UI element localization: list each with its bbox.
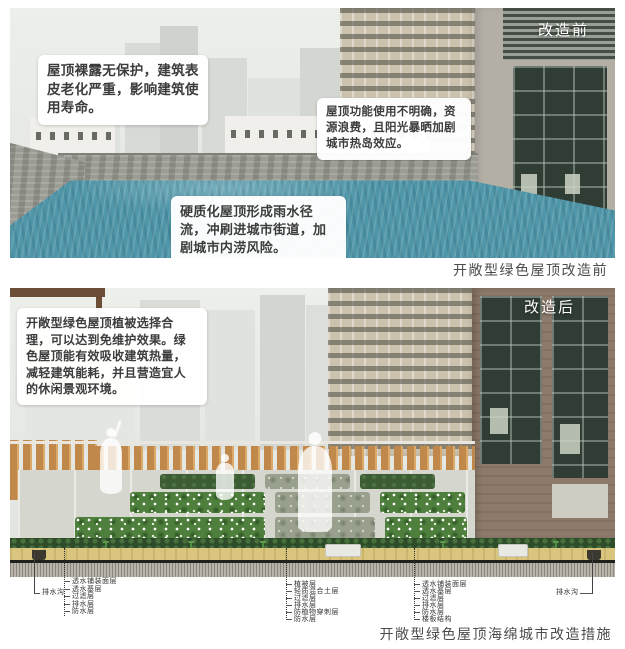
white-tarp: [552, 484, 608, 518]
skyline-tower: [205, 310, 255, 450]
layer-label: 防水层: [414, 609, 467, 616]
leader-connector: [580, 593, 592, 594]
callout-green-roof-benefits: 开敞型绿色屋顶植被选择合理，可以达到免维护效果。绿色屋顶能有效吸收建筑热量，减轻…: [17, 308, 207, 405]
skyline-tower: [260, 295, 305, 450]
caption-before: 开敞型绿色屋顶改造前: [453, 260, 608, 280]
photo-before-renovation: 改造前 屋顶裸露无保护，建筑表皮老化严重，影响建筑使用寿命。 屋顶功能使用不明确…: [10, 8, 615, 258]
green-glass-window: [552, 296, 608, 478]
planted-bed: [385, 517, 467, 540]
fence-rail: [10, 441, 475, 444]
drain-channel-graphic: [587, 550, 601, 560]
layer-label: 透水基层: [64, 586, 117, 594]
layer-label: 防植物穿刺层: [286, 609, 339, 616]
leader-line-drain-left: [34, 552, 35, 594]
sprout-icon: [555, 541, 557, 548]
planted-bed: [160, 474, 255, 489]
planted-bed: [75, 517, 265, 540]
brown-building: [472, 288, 615, 540]
planted-bed: [380, 492, 465, 513]
layer-label: 防水层: [64, 608, 117, 616]
layer-label: 透水铺装面层: [64, 578, 117, 586]
planted-bed: [360, 474, 435, 489]
apartment-tower: [328, 288, 478, 456]
caption-after: 开敞型绿色屋顶海绵城市改造措施: [380, 624, 613, 644]
callout-roof-exposed: 屋顶裸露无保护，建筑表皮老化严重，影响建筑使用寿命。: [38, 55, 208, 125]
right-layer-list: 透水铺装面层 透水基层 过滤层 排水层 防水层 楼板结构: [414, 581, 467, 623]
layer-label: 过滤层: [414, 595, 467, 602]
planter-box-graphic: [325, 544, 361, 557]
callout-runoff: 硬质化屋顶形成雨水径流，冲刷进城市街道，加剧城市内涝风险。: [171, 196, 346, 258]
layer-label: 排水层: [414, 602, 467, 609]
layer-label: 楼板结构: [414, 616, 467, 623]
drain-right-label: 排水沟: [556, 589, 579, 597]
layer-label: 轻质混合土层: [286, 588, 339, 595]
left-layer-list: 透水铺装面层 透水基层 过滤层 排水层 防水层: [64, 578, 117, 616]
planted-bed: [130, 492, 265, 513]
sprout-icon: [442, 541, 444, 548]
tag-after: 改造后: [524, 296, 575, 317]
drain-left-label: 排水沟: [42, 589, 65, 597]
structural-deck-graphic: [10, 563, 615, 577]
person-silhouette: [216, 454, 234, 500]
infographic-green-roof: 改造前 屋顶裸露无保护，建筑表皮老化严重，影响建筑使用寿命。 屋顶功能使用不明确…: [0, 0, 625, 649]
window-poster: [565, 174, 580, 194]
sprout-icon: [262, 541, 264, 548]
tag-before: 改造前: [538, 19, 589, 40]
sprout-icon: [190, 541, 192, 548]
person-silhouette: [298, 432, 332, 532]
layer-label: 过滤层: [286, 595, 339, 602]
layer-label: 防水层: [286, 616, 339, 623]
pergola-beam: [10, 288, 105, 297]
leader-line-drain-right: [592, 552, 593, 594]
layer-label: 排水层: [64, 601, 117, 609]
roof-cross-section: [10, 538, 615, 578]
leader-connector: [35, 593, 40, 594]
callout-heat-island: 屋顶功能使用不明确，资源浪费，且阳光暴晒加剧城市热岛效应。: [317, 98, 471, 160]
photo-after-renovation: 改造后 开敞型绿色屋顶植被选择合理，可以达到免维护效果。绿色屋顶能有效吸收建筑热…: [10, 288, 615, 540]
window-poster: [560, 424, 580, 454]
green-glass-window: [513, 66, 607, 214]
green-glass-window: [480, 296, 542, 464]
layer-label: 过滤层: [64, 593, 117, 601]
planter-box-graphic: [498, 544, 528, 557]
layer-label: 植被层: [286, 581, 339, 588]
layer-label: 透水基层: [414, 588, 467, 595]
layer-label: 透水铺装面层: [414, 581, 467, 588]
window-poster: [490, 408, 508, 434]
layer-label: 排水层: [286, 602, 339, 609]
person-silhouette: [100, 428, 122, 494]
middle-layer-list: 植被层 轻质混合土层 过滤层 排水层 防植物穿刺层 防水层: [286, 581, 339, 623]
sprout-icon: [105, 541, 107, 548]
